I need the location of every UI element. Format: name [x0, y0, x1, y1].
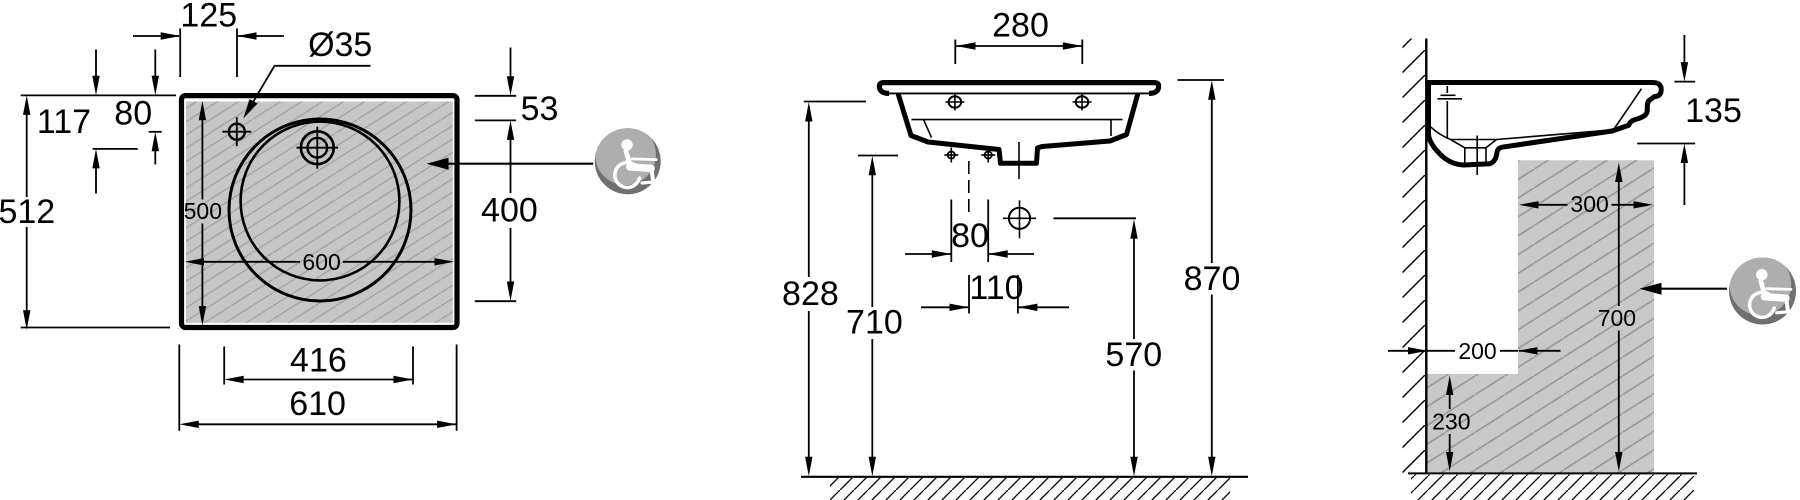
svg-text:416: 416	[290, 341, 347, 379]
svg-text:600: 600	[302, 249, 340, 275]
svg-text:500: 500	[184, 198, 222, 224]
svg-text:110: 110	[969, 269, 1023, 307]
svg-text:200: 200	[1458, 338, 1496, 364]
svg-text:870: 870	[1184, 260, 1241, 298]
svg-text:570: 570	[1105, 336, 1162, 374]
svg-text:828: 828	[782, 275, 839, 313]
svg-text:300: 300	[1570, 191, 1608, 217]
svg-text:400: 400	[481, 191, 538, 229]
svg-text:512: 512	[0, 193, 55, 231]
svg-text:80: 80	[114, 95, 152, 133]
svg-text:710: 710	[846, 304, 903, 342]
svg-text:125: 125	[180, 0, 237, 35]
svg-text:230: 230	[1432, 409, 1470, 435]
svg-text:80: 80	[951, 217, 989, 255]
svg-text:135: 135	[1685, 92, 1742, 130]
svg-text:280: 280	[992, 6, 1049, 44]
svg-text:53: 53	[521, 90, 559, 128]
svg-text:117: 117	[37, 103, 91, 141]
svg-text:700: 700	[1598, 305, 1636, 331]
svg-text:610: 610	[289, 385, 346, 423]
svg-text:Ø35: Ø35	[308, 26, 372, 64]
